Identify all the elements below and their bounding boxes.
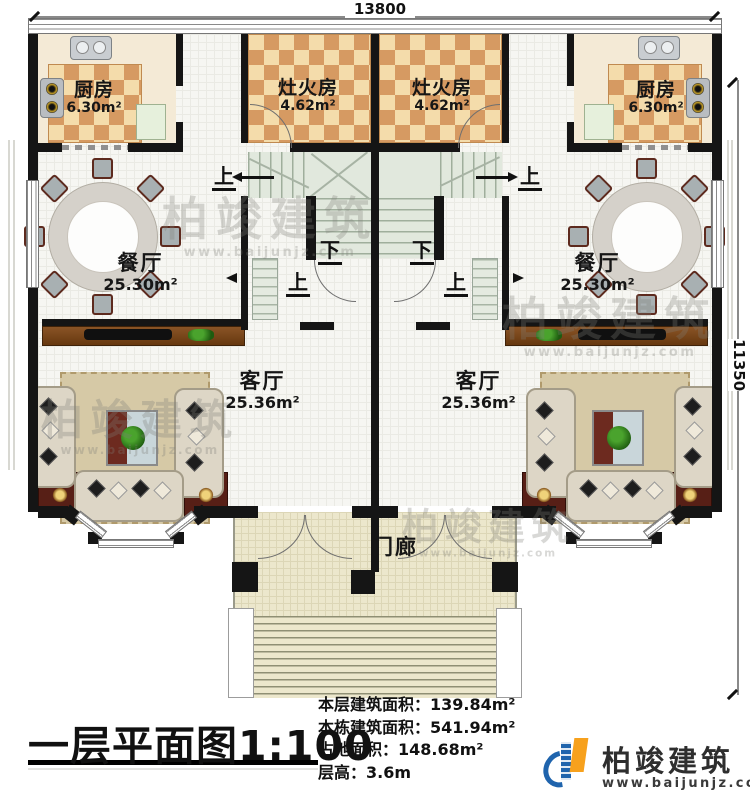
wall [28, 18, 38, 180]
wall [128, 143, 183, 152]
kitchen-left-sliding-door [62, 145, 128, 150]
stair-arrow-line [240, 176, 274, 179]
dimension-top: 13800 [345, 0, 415, 18]
room-label-stove-right: 灶火房 4.62m² [392, 78, 492, 115]
room-label-dining-left: 餐厅 25.30m² [88, 252, 193, 293]
wall [246, 506, 258, 518]
kitchen-right-sliding-door [622, 145, 688, 150]
bay-window [576, 539, 652, 548]
wall [176, 122, 183, 143]
medallion [52, 487, 68, 503]
plan-title: 一层平面图1:100 [28, 712, 374, 772]
dining-chair [92, 294, 113, 315]
wall [492, 506, 504, 518]
stair-down-label: 下 [410, 234, 434, 263]
porch-pilaster-right [496, 608, 522, 698]
medallion [536, 487, 552, 503]
dining-chair [636, 158, 657, 179]
logo: 柏竣建筑 www.baijunjz.com [544, 732, 746, 802]
logo-building-icon [544, 736, 592, 794]
stair-arrow [513, 273, 524, 283]
stair-up-label: 上 [518, 160, 542, 189]
stair-arrow-line [476, 176, 510, 179]
wall [712, 18, 722, 180]
porch-column [492, 562, 518, 592]
bay-window [98, 539, 174, 548]
exterior-line [13, 140, 15, 470]
sink-basin [93, 41, 106, 54]
wall [567, 143, 622, 152]
exterior-line [727, 140, 729, 470]
wall [352, 506, 398, 518]
dining-chair [636, 294, 657, 315]
porch-column [232, 562, 258, 592]
wall [416, 322, 450, 330]
wall [300, 322, 334, 330]
logo-tower-blue [561, 742, 571, 780]
room-label-kitchen-left: 厨房 6.30m² [50, 80, 138, 117]
wall [688, 143, 712, 152]
wall [567, 34, 574, 86]
floor-plan-sheet: 厨房 6.30m² 厨房 6.30m² 灶火房 4.62m² 灶火房 4.62m… [0, 0, 750, 809]
sink-basin [661, 41, 674, 54]
sink-basin [644, 41, 657, 54]
room-label-living-right: 客厅 25.36m² [426, 370, 531, 411]
exterior-line [731, 140, 733, 470]
wall [712, 288, 722, 512]
stair-up-label: 上 [286, 266, 310, 295]
dining-chair [92, 158, 113, 179]
wall [42, 319, 245, 326]
fridge [584, 104, 614, 140]
porch-pilaster-left [228, 608, 254, 698]
room-label-kitchen-right: 厨房 6.30m² [612, 80, 700, 117]
room-label-living-left: 客厅 25.36m² [210, 370, 315, 411]
stair-arrow [232, 172, 242, 182]
room-label-dining-right: 餐厅 25.30m² [545, 252, 650, 293]
window [26, 180, 39, 288]
plant [536, 329, 562, 341]
wall [241, 196, 248, 330]
wall [502, 196, 509, 330]
logo-url: www.baijunjz.com [602, 776, 750, 791]
wall [290, 143, 371, 152]
dining-chair [160, 226, 181, 247]
sink-basin [76, 41, 89, 54]
porch-steps [254, 616, 496, 698]
wall [505, 319, 708, 326]
tv [84, 329, 172, 340]
plant [607, 426, 631, 450]
stair-arrow [508, 172, 518, 182]
stair-down-label: 下 [318, 234, 342, 263]
medallion [198, 487, 214, 503]
wall-center [371, 18, 379, 506]
fridge [136, 104, 166, 140]
stair-up-label: 上 [444, 266, 468, 295]
stair-entry-steps-right [472, 258, 498, 320]
plant [121, 426, 145, 450]
sofa [566, 470, 676, 522]
wall [379, 143, 460, 152]
exterior-line [8, 140, 10, 470]
wall [176, 34, 183, 86]
stair-entry-steps-left [252, 258, 278, 320]
tv [578, 329, 666, 340]
room-label-stove-left: 灶火房 4.62m² [258, 78, 358, 115]
logo-tower-orange [570, 738, 589, 772]
plant [188, 329, 214, 341]
room-label-porch: 门廊 [362, 536, 428, 560]
wall [241, 34, 248, 143]
porch-column [351, 570, 375, 594]
dining-chair [568, 226, 589, 247]
wall [434, 196, 444, 260]
stair-landing-right [379, 152, 440, 198]
wall [306, 196, 316, 260]
sofa [74, 470, 184, 522]
wall [567, 122, 574, 143]
window [711, 180, 724, 288]
logo-name: 柏竣建筑 [602, 738, 734, 780]
stair-arrow [226, 273, 237, 283]
dimension-right: 11350 [728, 339, 748, 391]
wall [28, 288, 38, 512]
window [28, 18, 722, 34]
stair-flight-left [248, 152, 310, 198]
wall [502, 34, 509, 143]
medallion [682, 487, 698, 503]
wall [38, 143, 62, 152]
